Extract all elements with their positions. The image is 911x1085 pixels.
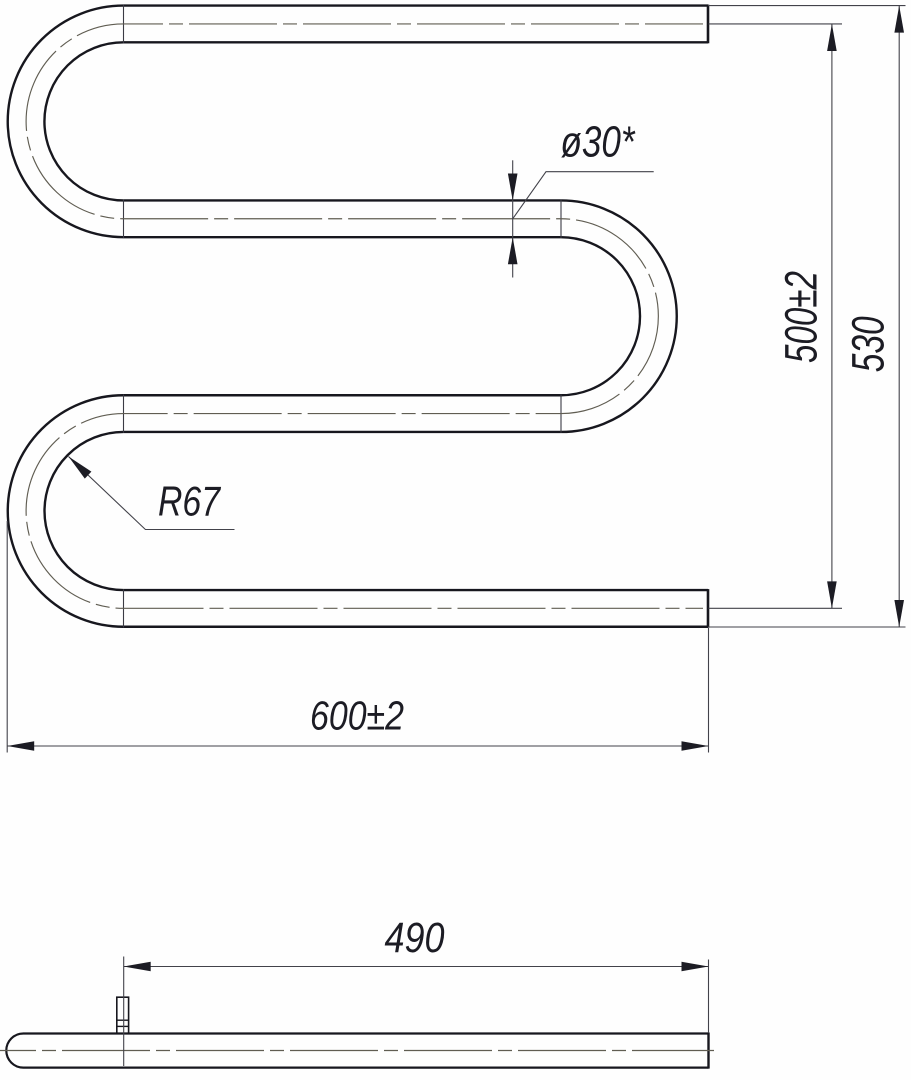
svg-text:530: 530 [843, 316, 894, 372]
svg-text:ø30*: ø30* [561, 118, 636, 167]
svg-text:R67: R67 [158, 478, 221, 525]
svg-text:490: 490 [385, 914, 445, 962]
svg-text:600±2: 600±2 [310, 693, 404, 739]
svg-text:500±2: 500±2 [776, 271, 827, 363]
